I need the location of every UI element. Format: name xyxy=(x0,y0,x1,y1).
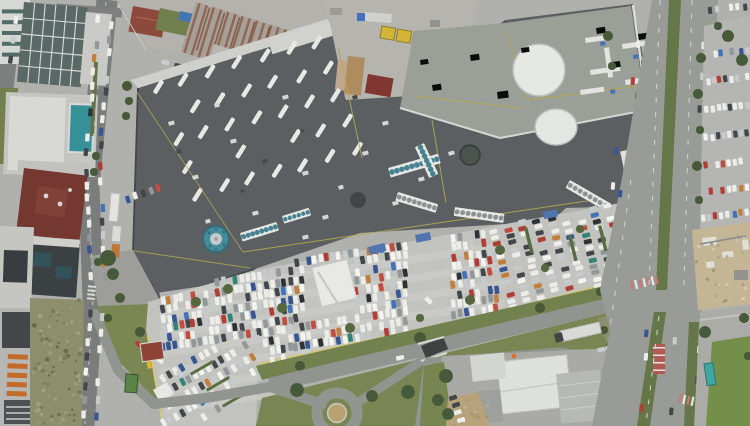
aerial-photo xyxy=(0,0,750,426)
aerial-scene xyxy=(0,0,750,426)
haze-overlay xyxy=(0,0,750,426)
